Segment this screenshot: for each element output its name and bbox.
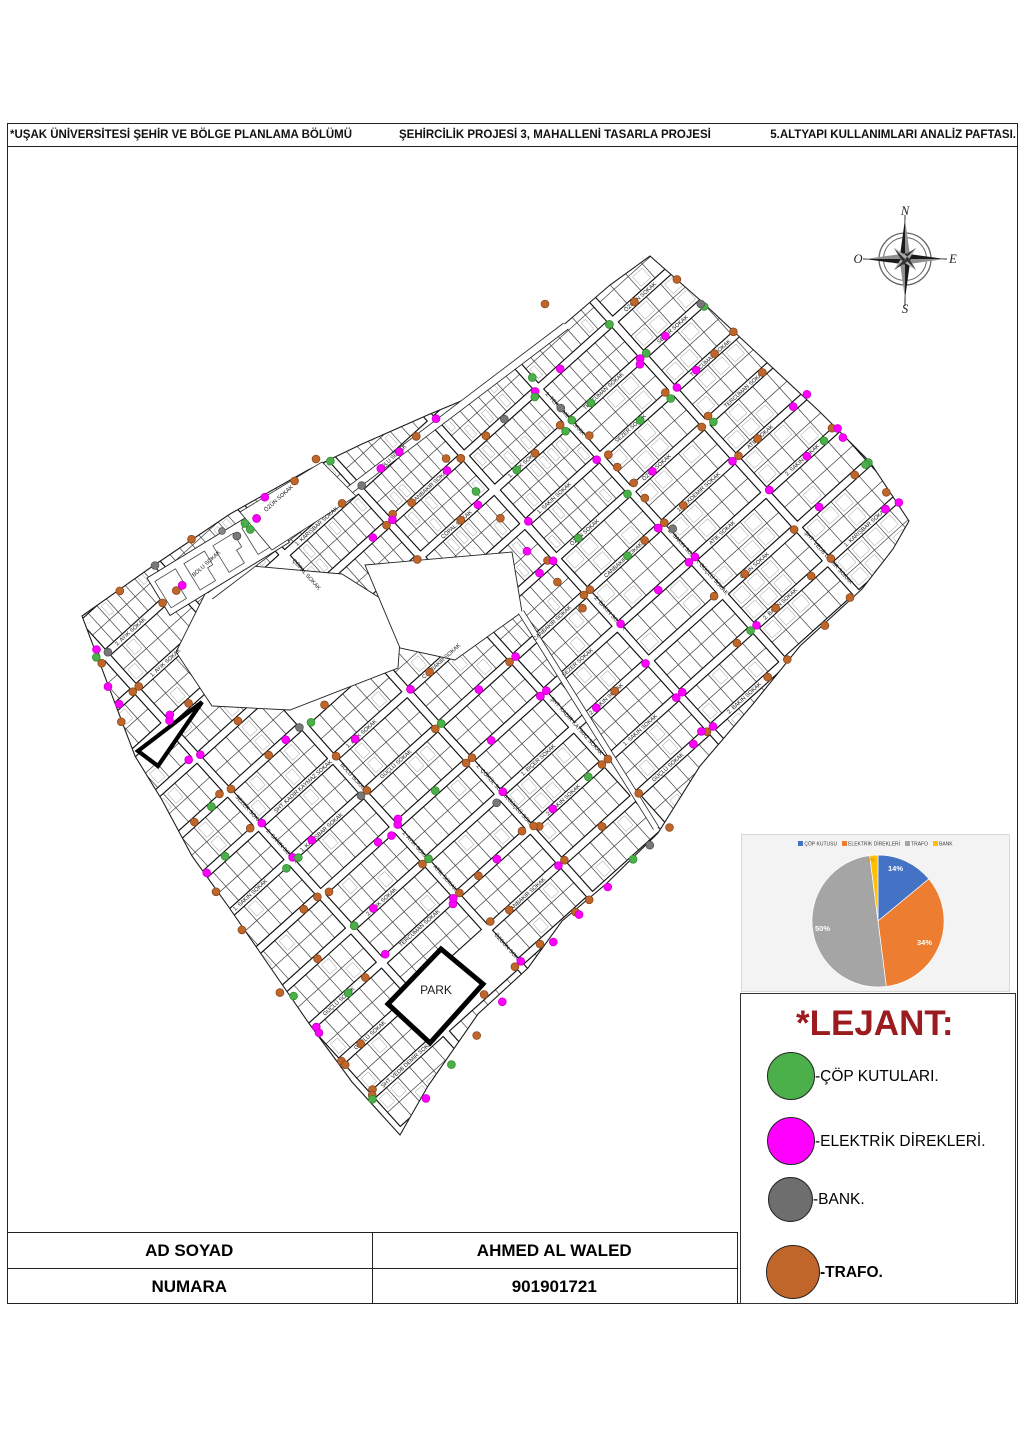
svg-text:1. KARIŞBAR SOKAK: 1. KARIŞBAR SOKAK [843,507,888,549]
svg-text:ÖZÜN SOKAK: ÖZÜN SOKAK [641,453,673,483]
svg-text:14%: 14% [888,864,903,873]
svg-text:CANBAKIR SOKAK: CANBAKIR SOKAK [532,605,573,643]
svg-text:2. AYIK SOKAK: 2. AYIK SOKAK [365,887,398,918]
svg-text:34%: 34% [917,938,932,947]
svg-text:1. SAKIN SOKAK: 1. SAKIN SOKAK [232,879,269,913]
svg-text:TERCÜMAN SOKAK: TERCÜMAN SOKAK [398,908,442,949]
svg-text:N: N [900,204,910,218]
svg-text:O: O [853,252,862,266]
svg-text:E: E [948,252,957,266]
svg-text:2. AYIK SOKAK: 2. AYIK SOKAK [114,617,147,648]
svg-text:1. AYIK SOKAK: 1. AYIK SOKAK [149,648,182,679]
svg-text:ÖZÜN SOKAK: ÖZÜN SOKAK [569,518,601,548]
svg-text:1. AYIK SOKAK: 1. AYIK SOKAK [345,719,378,750]
svg-text:GÜÇLÜ SOKAK: GÜÇLÜ SOKAK [698,562,730,597]
svg-text:1. SAKIN SOKAK: 1. SAKIN SOKAK [622,714,659,748]
svg-text:S: S [902,302,909,316]
svg-text:PARK: PARK [420,983,452,997]
svg-text:2%: 2% [867,858,875,864]
svg-text:2. SAKIN SOKAK: 2. SAKIN SOKAK [784,444,821,478]
svg-text:2. BAKIN SOKAK: 2. BAKIN SOKAK [762,588,799,622]
svg-text:CANBAKIR SOKAK: CANBAKIR SOKAK [603,542,644,580]
svg-text:1. SAKIN SOKAK: 1. SAKIN SOKAK [536,482,573,516]
svg-text:ŞHT. KADİR KAYMAZ SOKAK: ŞHT. KADİR KAYMAZ SOKAK [273,758,334,814]
svg-text:50%: 50% [815,924,830,933]
